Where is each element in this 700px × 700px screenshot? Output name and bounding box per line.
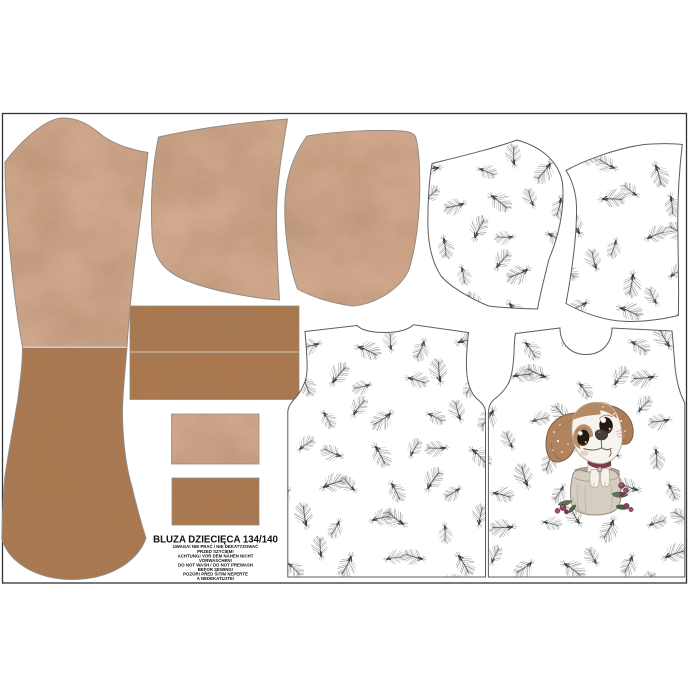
- svg-text:A NEDEKATUJTE!: A NEDEKATUJTE!: [197, 576, 235, 581]
